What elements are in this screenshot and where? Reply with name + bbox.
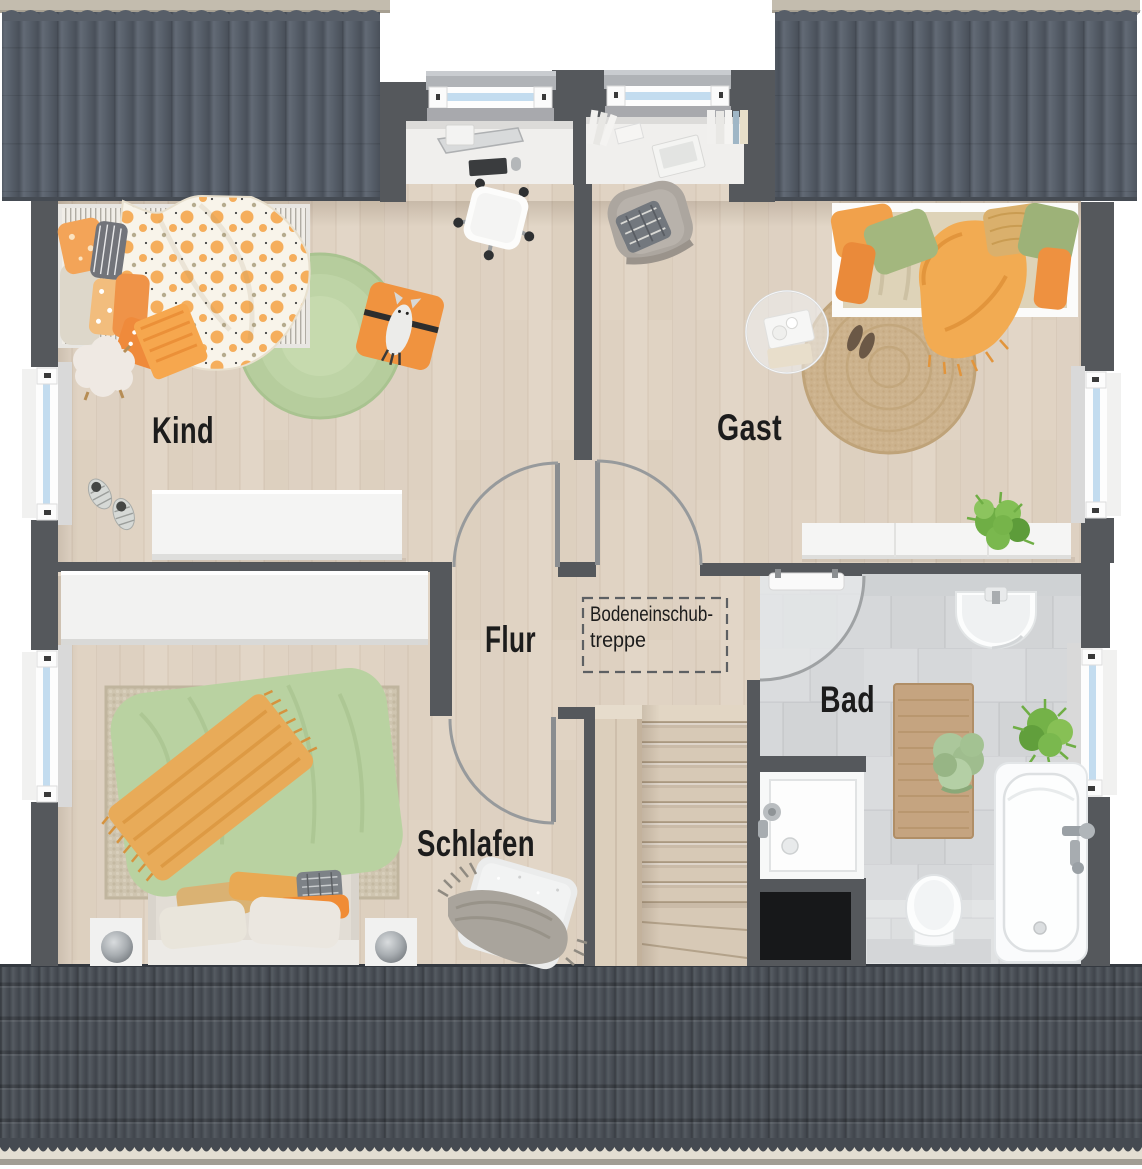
svg-text:Bodeneinschub-: Bodeneinschub- [590, 603, 713, 626]
svg-text:Flur: Flur [485, 619, 536, 660]
svg-text:Schlafen: Schlafen [417, 823, 535, 864]
svg-text:treppe: treppe [590, 629, 646, 652]
svg-text:Gast: Gast [717, 407, 782, 448]
svg-text:Kind: Kind [152, 410, 214, 451]
svg-text:Bad: Bad [820, 679, 875, 720]
